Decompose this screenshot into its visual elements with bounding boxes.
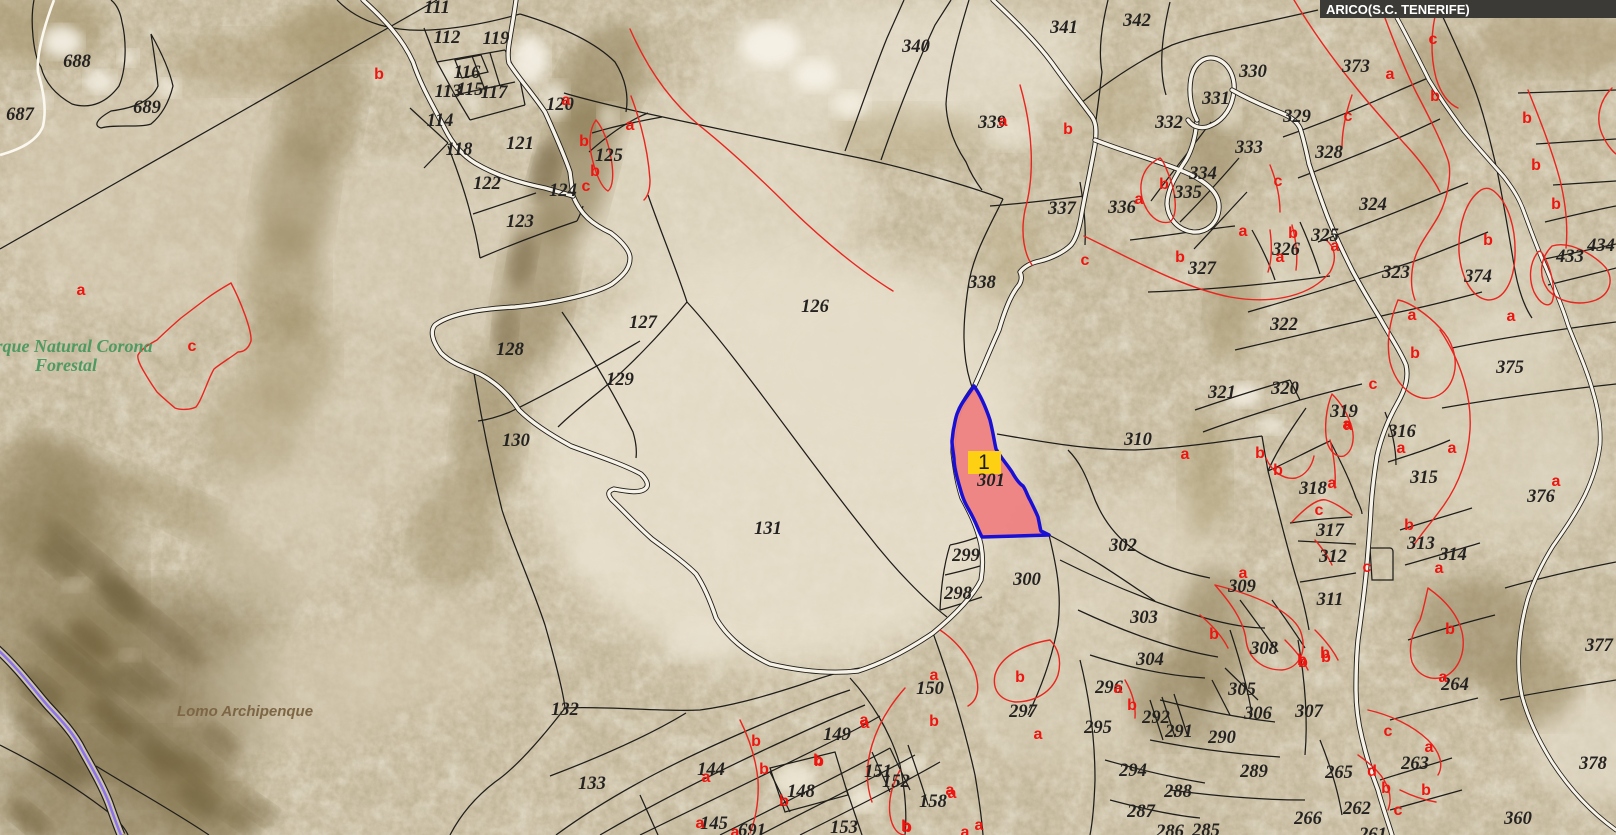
svg-text:a: a — [731, 824, 740, 835]
svg-text:304: 304 — [1135, 650, 1164, 670]
svg-text:123: 123 — [506, 212, 534, 232]
svg-text:312: 312 — [1318, 547, 1347, 567]
svg-text:a: a — [77, 282, 86, 299]
svg-text:337: 337 — [1047, 199, 1077, 219]
svg-text:a: a — [1135, 191, 1144, 208]
svg-text:b: b — [1531, 157, 1541, 174]
svg-text:306: 306 — [1243, 704, 1273, 724]
svg-text:305: 305 — [1227, 680, 1256, 700]
svg-text:Lomo Archipenque: Lomo Archipenque — [177, 703, 313, 720]
svg-text:a: a — [1331, 238, 1340, 255]
svg-text:285: 285 — [1191, 821, 1220, 835]
svg-text:300: 300 — [1012, 570, 1041, 590]
svg-text:a: a — [1034, 726, 1043, 743]
svg-text:c: c — [1394, 802, 1403, 819]
svg-text:341: 341 — [1049, 18, 1078, 38]
svg-text:a: a — [961, 824, 970, 835]
svg-text:b: b — [1421, 782, 1431, 799]
svg-text:a: a — [1408, 307, 1417, 324]
svg-text:295: 295 — [1083, 718, 1112, 738]
svg-text:338: 338 — [967, 273, 996, 293]
svg-text:b: b — [579, 133, 589, 150]
svg-text:687: 687 — [6, 105, 35, 125]
svg-text:289: 289 — [1239, 762, 1268, 782]
svg-text:158: 158 — [919, 792, 947, 812]
svg-text:b: b — [929, 713, 939, 730]
svg-text:c: c — [188, 338, 197, 355]
svg-text:313: 313 — [1406, 534, 1435, 554]
svg-text:b: b — [1381, 780, 1391, 797]
svg-text:c: c — [582, 178, 591, 195]
svg-text:c: c — [1384, 723, 1393, 740]
svg-text:a: a — [930, 667, 939, 684]
svg-text:c: c — [1369, 376, 1378, 393]
svg-text:b: b — [1321, 649, 1331, 666]
svg-text:b: b — [1015, 669, 1025, 686]
svg-text:117: 117 — [481, 83, 508, 103]
svg-text:287: 287 — [1126, 802, 1156, 822]
svg-text:b: b — [1159, 176, 1169, 193]
svg-text:b: b — [1288, 225, 1298, 242]
svg-text:301: 301 — [976, 471, 1005, 491]
svg-text:124: 124 — [549, 181, 577, 201]
svg-text:b: b — [1404, 517, 1414, 534]
svg-text:290: 290 — [1207, 728, 1236, 748]
svg-text:a: a — [562, 92, 571, 109]
svg-text:310: 310 — [1123, 430, 1152, 450]
svg-text:342: 342 — [1122, 11, 1151, 31]
svg-text:335: 335 — [1173, 183, 1202, 203]
svg-text:a: a — [1276, 249, 1285, 266]
svg-text:315: 315 — [1409, 468, 1438, 488]
svg-text:a: a — [1425, 739, 1434, 756]
svg-text:321: 321 — [1207, 383, 1236, 403]
svg-text:317: 317 — [1315, 521, 1345, 541]
svg-text:331: 331 — [1201, 89, 1230, 109]
svg-text:323: 323 — [1381, 263, 1410, 283]
svg-text:340: 340 — [901, 37, 930, 57]
svg-text:b: b — [1551, 196, 1561, 213]
svg-text:320: 320 — [1270, 379, 1299, 399]
svg-text:324: 324 — [1358, 195, 1387, 215]
svg-text:308: 308 — [1249, 639, 1278, 659]
svg-text:a: a — [1397, 440, 1406, 457]
svg-text:b: b — [814, 753, 824, 770]
svg-text:b: b — [1445, 621, 1455, 638]
svg-text:a: a — [1386, 66, 1395, 83]
svg-text:c: c — [1315, 502, 1324, 519]
svg-text:311: 311 — [1316, 590, 1344, 610]
svg-text:265: 265 — [1324, 763, 1353, 783]
svg-text:Forestal: Forestal — [34, 355, 97, 375]
svg-text:332: 332 — [1154, 113, 1183, 133]
svg-text:126: 126 — [801, 297, 830, 317]
svg-text:a: a — [999, 113, 1008, 130]
svg-text:a: a — [1439, 669, 1448, 686]
svg-text:112: 112 — [434, 28, 461, 48]
svg-text:263: 263 — [1400, 754, 1429, 774]
svg-text:118: 118 — [446, 140, 473, 160]
svg-text:261: 261 — [1358, 825, 1387, 835]
svg-text:a: a — [696, 815, 705, 832]
svg-text:360: 360 — [1503, 809, 1532, 829]
svg-text:a: a — [1507, 308, 1516, 325]
svg-text:375: 375 — [1495, 358, 1524, 378]
svg-text:307: 307 — [1294, 702, 1324, 722]
svg-text:373: 373 — [1341, 57, 1370, 77]
svg-text:a: a — [1239, 565, 1248, 582]
svg-text:a: a — [1552, 473, 1561, 490]
svg-text:329: 329 — [1282, 107, 1311, 127]
svg-text:a: a — [1239, 223, 1248, 240]
svg-text:c: c — [1081, 252, 1090, 269]
svg-text:303: 303 — [1129, 608, 1158, 628]
svg-text:297: 297 — [1008, 702, 1038, 722]
svg-text:298: 298 — [943, 584, 972, 604]
svg-text:a: a — [1435, 560, 1444, 577]
svg-text:433: 433 — [1555, 247, 1584, 267]
svg-text:318: 318 — [1298, 479, 1327, 499]
svg-text:a: a — [975, 817, 984, 834]
svg-text:128: 128 — [496, 340, 524, 360]
svg-text:b: b — [779, 793, 789, 810]
svg-text:b: b — [374, 66, 384, 83]
svg-text:b: b — [1255, 445, 1265, 462]
svg-text:129: 129 — [606, 370, 634, 390]
svg-text:328: 328 — [1314, 143, 1343, 163]
svg-text:266: 266 — [1293, 809, 1323, 829]
svg-text:330: 330 — [1238, 62, 1267, 82]
svg-text:a: a — [1343, 416, 1352, 433]
svg-text:336: 336 — [1107, 198, 1137, 218]
svg-text:127: 127 — [629, 313, 658, 333]
svg-text:a: a — [1328, 475, 1337, 492]
svg-text:691: 691 — [738, 821, 766, 835]
svg-text:c: c — [1363, 559, 1372, 576]
svg-text:327: 327 — [1187, 259, 1217, 279]
svg-text:a: a — [1181, 446, 1190, 463]
svg-text:b: b — [1273, 462, 1283, 479]
svg-text:b: b — [590, 163, 600, 180]
svg-text:b: b — [1209, 626, 1219, 643]
svg-text:c: c — [1274, 173, 1283, 190]
svg-text:688: 688 — [63, 52, 91, 72]
svg-text:a: a — [626, 117, 635, 134]
svg-text:299: 299 — [951, 546, 980, 566]
svg-text:b: b — [759, 761, 769, 778]
svg-text:149: 149 — [823, 725, 851, 745]
svg-text:114: 114 — [427, 111, 454, 131]
svg-text:133: 133 — [578, 774, 606, 794]
svg-text:378: 378 — [1578, 754, 1607, 774]
svg-text:d: d — [1367, 763, 1377, 780]
svg-text:130: 130 — [502, 431, 530, 451]
svg-text:c: c — [1344, 108, 1353, 125]
svg-text:ARICO(S.C. TENERIFE): ARICO(S.C. TENERIFE) — [1326, 2, 1470, 17]
svg-text:b: b — [1483, 232, 1493, 249]
svg-text:286: 286 — [1155, 822, 1185, 835]
svg-text:122: 122 — [473, 174, 501, 194]
svg-text:b: b — [1430, 88, 1440, 105]
svg-text:b: b — [751, 733, 761, 750]
svg-text:c: c — [1429, 31, 1438, 48]
svg-text:302: 302 — [1108, 536, 1137, 556]
svg-text:b: b — [1127, 697, 1137, 714]
svg-text:377: 377 — [1584, 636, 1614, 656]
svg-text:rque Natural Corona: rque Natural Corona — [0, 336, 153, 356]
svg-text:b: b — [1297, 652, 1307, 669]
svg-text:111: 111 — [424, 0, 450, 18]
svg-text:131: 131 — [754, 519, 782, 539]
svg-text:316: 316 — [1387, 422, 1417, 442]
svg-text:115: 115 — [457, 80, 484, 100]
svg-text:a: a — [702, 769, 711, 786]
svg-text:689: 689 — [133, 98, 161, 118]
svg-text:119: 119 — [483, 29, 510, 49]
svg-text:b: b — [1522, 110, 1532, 127]
svg-text:434: 434 — [1586, 236, 1615, 256]
svg-text:b: b — [1175, 249, 1185, 266]
svg-text:322: 322 — [1269, 315, 1298, 335]
svg-text:a: a — [1114, 680, 1123, 697]
svg-text:374: 374 — [1463, 267, 1492, 287]
svg-text:294: 294 — [1118, 761, 1147, 781]
svg-text:333: 333 — [1234, 138, 1263, 158]
svg-text:a: a — [948, 785, 957, 802]
svg-text:334: 334 — [1188, 164, 1217, 184]
svg-text:292: 292 — [1141, 708, 1170, 728]
svg-text:132: 132 — [551, 700, 579, 720]
svg-text:152: 152 — [882, 772, 910, 792]
svg-text:a: a — [1448, 440, 1457, 457]
svg-text:121: 121 — [506, 134, 534, 154]
svg-text:262: 262 — [1342, 799, 1371, 819]
svg-text:376: 376 — [1526, 487, 1556, 507]
svg-text:b: b — [1410, 345, 1420, 362]
svg-text:b: b — [1063, 121, 1073, 138]
svg-text:148: 148 — [787, 782, 815, 802]
svg-text:288: 288 — [1163, 782, 1192, 802]
svg-text:b: b — [901, 818, 911, 835]
svg-text:a: a — [861, 715, 870, 732]
svg-text:153: 153 — [830, 818, 858, 835]
